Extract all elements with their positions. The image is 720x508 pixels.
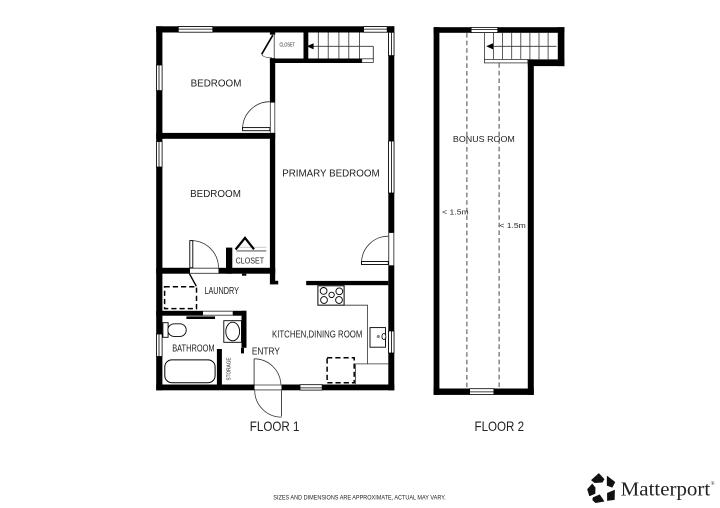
svg-text:KITCHEN,DINING ROOM: KITCHEN,DINING ROOM (272, 330, 362, 341)
svg-text:CLOSET: CLOSET (236, 255, 265, 265)
svg-text:FLOOR 2: FLOOR 2 (475, 418, 525, 434)
svg-text:CLOSET: CLOSET (279, 42, 295, 48)
svg-text:< 1.5m: < 1.5m (442, 207, 469, 216)
svg-text:BEDROOM: BEDROOM (191, 79, 242, 90)
svg-text:LAUNDRY: LAUNDRY (204, 286, 239, 297)
svg-text:< 1.5m: < 1.5m (499, 221, 526, 230)
svg-text:BONUS ROOM: BONUS ROOM (453, 135, 515, 144)
svg-text:ENTRY: ENTRY (252, 347, 280, 358)
svg-text:PRIMARY BEDROOM: PRIMARY BEDROOM (282, 169, 379, 180)
svg-text:BEDROOM: BEDROOM (190, 189, 241, 200)
svg-text:FLOOR 1: FLOOR 1 (250, 418, 300, 434)
svg-text:STORAGE: STORAGE (227, 357, 233, 380)
svg-text:BATHROOM: BATHROOM (172, 344, 214, 355)
svg-text:Matterport: Matterport (621, 479, 711, 501)
svg-text:SIZES AND DIMENSIONS ARE APPRO: SIZES AND DIMENSIONS ARE APPROXIMATE, AC… (273, 496, 446, 502)
svg-text:®: ® (711, 480, 715, 487)
